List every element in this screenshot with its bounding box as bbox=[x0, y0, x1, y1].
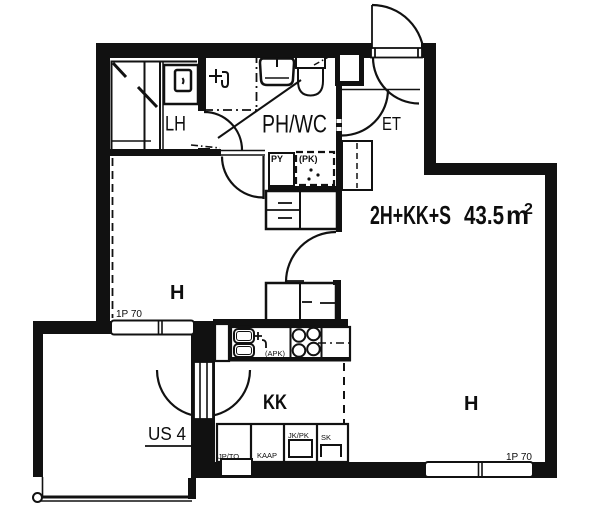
svg-text:H: H bbox=[464, 393, 478, 415]
svg-text:1P 70: 1P 70 bbox=[116, 309, 142, 320]
svg-text:(APK): (APK) bbox=[265, 349, 286, 358]
svg-text:H: H bbox=[170, 282, 184, 304]
svg-text:(PK): (PK) bbox=[299, 154, 318, 164]
svg-text:US 4: US 4 bbox=[148, 424, 186, 444]
svg-text:PH/WC: PH/WC bbox=[262, 111, 327, 139]
svg-text:2: 2 bbox=[524, 201, 533, 218]
svg-text:2H+KK+S: 2H+KK+S bbox=[370, 200, 451, 230]
svg-text:LH: LH bbox=[165, 113, 186, 136]
svg-text:PY: PY bbox=[271, 154, 283, 164]
svg-text:KAAP: KAAP bbox=[257, 451, 277, 460]
svg-text:JK/PK: JK/PK bbox=[288, 431, 309, 440]
svg-text:ET: ET bbox=[382, 114, 401, 134]
svg-text:KK: KK bbox=[263, 391, 287, 414]
svg-text:SK: SK bbox=[321, 433, 331, 442]
svg-text:43.5: 43.5 bbox=[464, 200, 504, 230]
